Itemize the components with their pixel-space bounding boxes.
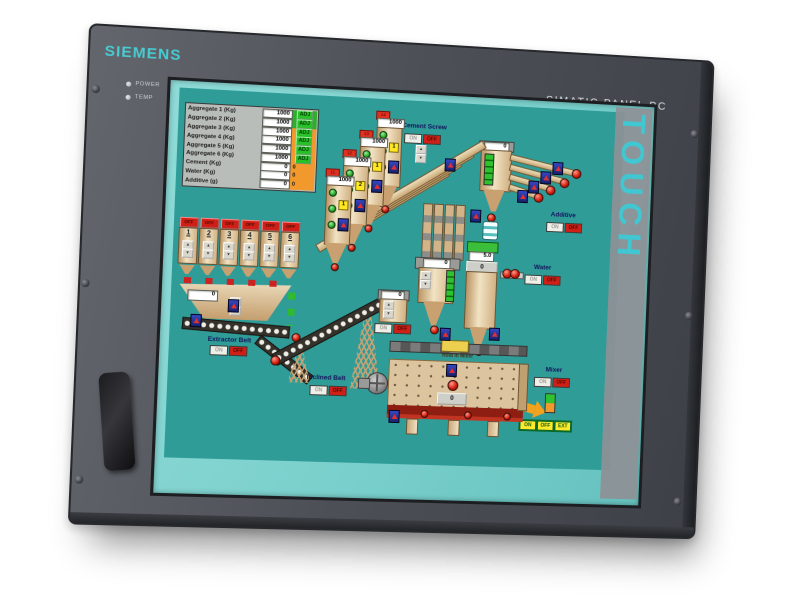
off-button[interactable]: OFF [393,324,411,335]
alarm-icon [489,328,500,341]
siemens-logo: SIEMENS [104,42,182,64]
alarm-icon [528,180,539,193]
mixer-leg [487,421,499,437]
on-button[interactable]: ON [534,377,552,388]
alarm-icon [388,160,399,174]
off-button[interactable]: OFF [543,275,561,286]
cement-hopper-stepper: ▲ ▼ [420,271,432,289]
on-button[interactable]: ON [404,133,422,144]
panel-bottom-edge [70,512,694,537]
level-indicator [445,270,455,302]
up-button[interactable]: ▲ [383,300,394,309]
alarm-icon [444,158,455,171]
dose-counter: 2 [355,181,365,192]
cement-screw-onoff: ON OFF [404,133,441,145]
valve-indicator [331,263,339,271]
dose-counter: 1 [338,200,348,211]
cement-hopper-display: 0 [423,258,451,269]
status-led: TEMP [125,94,159,102]
cement-screw-stepper: ▲ ▼ [415,145,427,164]
alarm-icon [190,314,202,328]
additive-container [482,221,498,241]
on-button[interactable]: ON [374,323,392,334]
off-button[interactable]: OFF [564,223,582,234]
status-led: POWER [126,80,160,88]
on-button[interactable]: ON [524,274,542,285]
feed-hopper-display: 0 [381,290,405,300]
status-light [329,188,337,196]
mixer-label: Mixer [534,366,573,374]
mixer-leg [447,420,459,436]
additive-onoff: ON OFF [546,222,582,234]
silo-cone [324,243,347,264]
status-light [327,221,335,229]
panel-pc: SIEMENS SIMATIC PANEL PC POWER TEMP Aggr… [68,23,715,539]
led-dot-icon [126,81,131,86]
alarm-icon [517,190,528,203]
mixer-onoff: ON OFF [534,377,570,388]
led-dot-icon [125,94,130,99]
mixer-motor-shaft [358,378,370,389]
screw-icon [91,85,100,94]
led-label: POWER [135,81,160,88]
down-button[interactable]: ▼ [415,154,426,164]
alarm-icon [228,299,240,313]
cement-silo: 11 1000 1 [322,168,353,288]
off-button[interactable]: OFF [552,378,570,388]
alarm-icon [446,364,457,377]
silo-body: 1 [324,184,353,245]
alarm-icon [470,209,481,222]
feed-hopper-onoff: ON OFF [374,323,411,334]
mixer-end-cap [517,363,529,411]
mixer-mode-button[interactable]: EXT [554,421,571,431]
alarm-icon [337,218,349,232]
alarm-icon [439,328,450,341]
on-button[interactable]: ON [546,222,564,233]
screw-icon [75,475,84,483]
screen: Aggregate 1 (Kg) 1000 ADJ Aggregate 2 (K… [150,77,657,509]
alarm-icon [552,162,563,175]
mixer-leg [406,418,419,434]
feed-hopper-stepper: ▲ ▼ [383,300,395,318]
up-button[interactable]: ▲ [420,271,431,280]
mixer-state-indicator [544,393,555,413]
screw-icon [81,279,90,288]
screw-icon [674,498,682,506]
handle [98,371,135,471]
level-indicator [483,153,494,185]
water-tank-body [464,271,498,330]
dose-counter: 1 [372,162,382,173]
hmi-screen: Aggregate 1 (Kg) 1000 ADJ Aggregate 2 (K… [164,88,625,471]
down-button[interactable]: ▼ [383,309,394,318]
status-leds: POWER TEMP [125,80,160,108]
off-button[interactable]: OFF [423,134,441,145]
dose-counter: 1 [389,142,399,153]
down-button[interactable]: ▼ [420,280,431,289]
mixer: Hold in Mixer 0 [380,334,532,439]
mixer-weight-display: 0 [437,392,467,405]
alarm-icon [388,410,399,423]
led-label: TEMP [135,94,154,101]
mixer-inlet [441,340,469,353]
mixer-mode-button[interactable]: OFF [537,421,554,431]
alarm-icon [371,180,383,194]
water-onoff: ON OFF [524,274,560,285]
status-light [328,205,336,213]
alarm-icon [540,171,551,184]
alarm-icon [354,199,366,213]
